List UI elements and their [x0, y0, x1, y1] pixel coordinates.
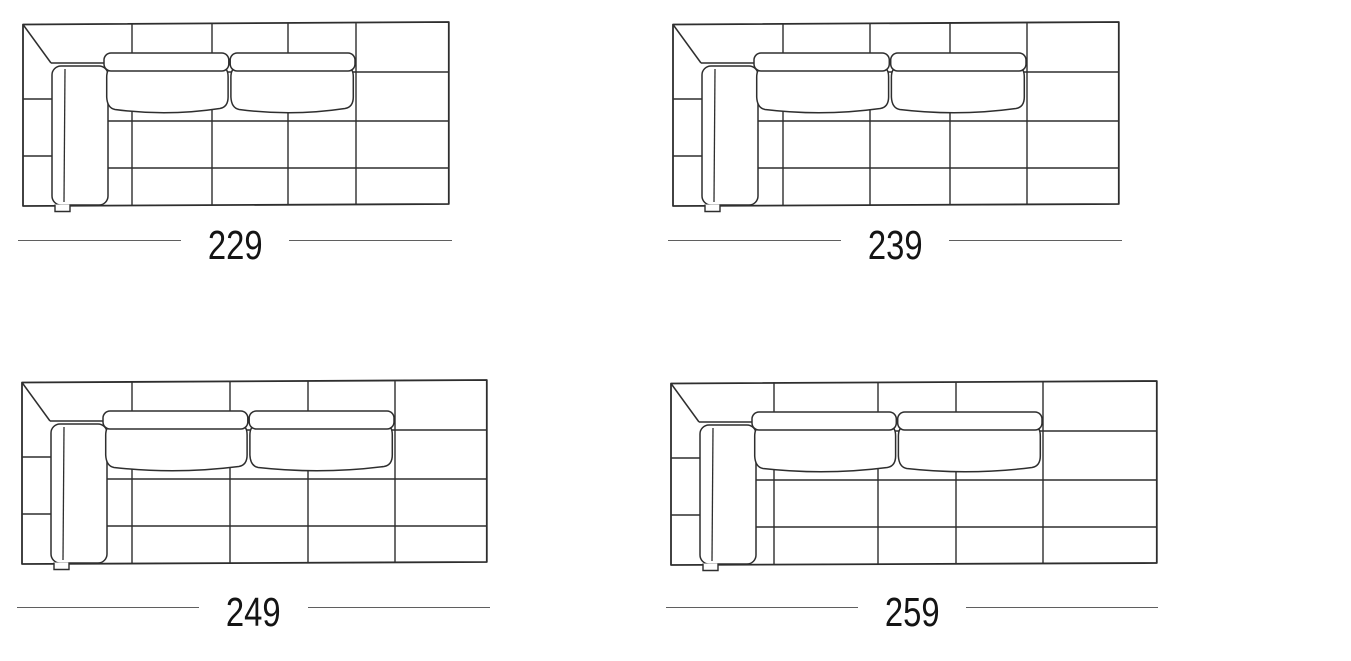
- dimension-annotation: 249: [17, 585, 490, 629]
- dimension-line-left: [18, 240, 181, 241]
- dimension-line-left: [666, 607, 858, 608]
- dimension-annotation: 239: [668, 218, 1122, 262]
- dimension-label: 239: [868, 225, 923, 266]
- sofa-size-diagram-sheet: 229239249259: [0, 0, 1351, 661]
- sofa-top-view-drawing: [19, 377, 490, 577]
- dimension-line-right: [308, 607, 490, 608]
- sofa-diagram-249: [19, 377, 490, 577]
- dimension-annotation: 259: [666, 585, 1158, 629]
- sofa-diagram-239: [670, 19, 1122, 219]
- dimension-label: 249: [226, 592, 281, 633]
- dimension-line-left: [668, 240, 841, 241]
- sofa-top-view-drawing: [20, 19, 452, 219]
- dimension-label: 229: [208, 225, 263, 266]
- sofa-diagram-259: [668, 378, 1160, 578]
- dimension-line-left: [17, 607, 199, 608]
- sofa-diagram-229: [20, 19, 452, 219]
- dimension-line-right: [949, 240, 1122, 241]
- dimension-line-right: [289, 240, 452, 241]
- dimension-annotation: 229: [18, 218, 452, 262]
- dimension-label: 259: [885, 592, 940, 633]
- dimension-line-right: [966, 607, 1158, 608]
- sofa-top-view-drawing: [668, 378, 1160, 578]
- sofa-top-view-drawing: [670, 19, 1122, 219]
